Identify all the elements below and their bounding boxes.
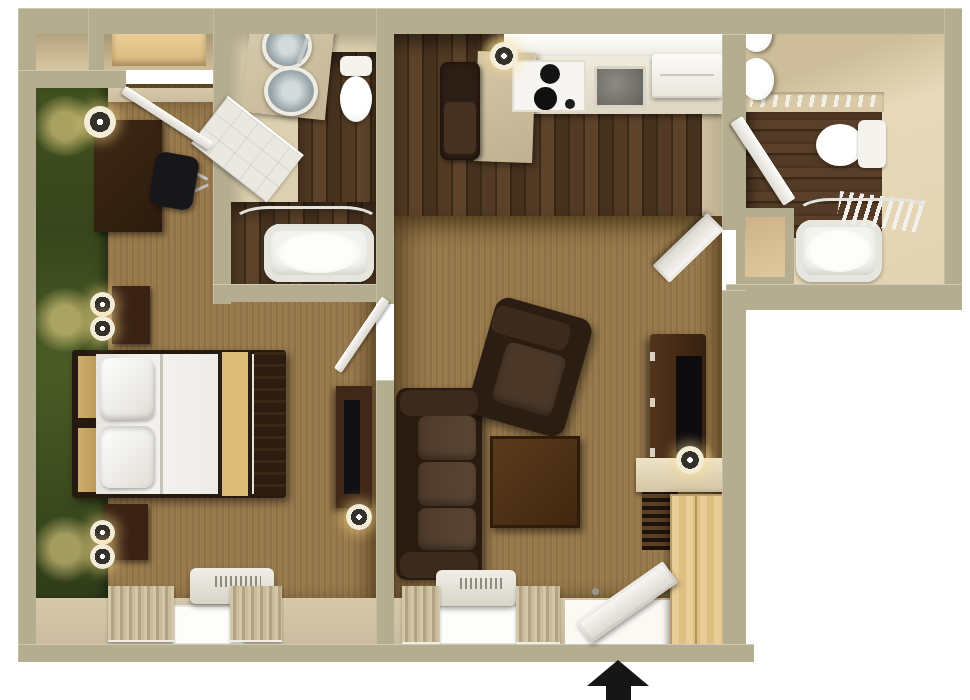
master-toilet — [340, 76, 372, 122]
bedroom-tv — [344, 400, 360, 494]
entry-arrow-head-icon — [587, 660, 649, 686]
wall-bath1-right — [376, 8, 394, 304]
desk-chair — [148, 151, 201, 212]
entry-arrow-stem-icon — [606, 685, 631, 700]
living-ac-unit — [436, 570, 516, 606]
shelf-slats-icon — [750, 95, 878, 107]
vessel-sink-icon — [264, 66, 318, 116]
refrigerator-seam — [660, 74, 714, 76]
sofa-cushion — [418, 462, 476, 506]
bed-pillows — [100, 358, 154, 420]
wardrobe-seam — [695, 496, 697, 644]
master-shower-rod-icon — [232, 206, 380, 239]
second-shower-rod-icon — [796, 198, 932, 229]
nightstand-lamp-icon — [90, 520, 115, 545]
second-toilet-tank — [858, 120, 886, 168]
bed-foot-blanket — [254, 352, 286, 496]
desk-lamp-icon — [84, 106, 116, 138]
wardrobe-cabinet — [670, 494, 728, 650]
living-curtain — [516, 586, 560, 644]
wall-right-upper — [944, 8, 962, 310]
burner-knob-icon — [565, 99, 575, 109]
kitchen-sink — [594, 66, 646, 108]
living-tv — [676, 356, 702, 452]
console-handle-icon — [650, 352, 655, 361]
living-curtain — [402, 586, 440, 644]
console-handle-icon — [650, 448, 655, 457]
burner-icon — [534, 87, 557, 110]
sofa-cushion — [418, 416, 476, 460]
console-lamp-icon — [676, 446, 704, 474]
wall-bath1-bottom — [213, 284, 394, 302]
bedroom-curtain — [230, 586, 282, 642]
nightstand-lamp-icon — [90, 292, 115, 317]
nightstand-lamp-icon — [90, 316, 115, 341]
wall-bath2-bottom — [726, 284, 962, 310]
bed-pillows — [100, 426, 154, 488]
sofa-cushion — [418, 508, 476, 550]
second-bathtub — [796, 220, 882, 282]
master-toilet-tank — [340, 56, 372, 76]
doorknob-icon — [592, 588, 599, 595]
coffee-table — [490, 436, 580, 528]
nightstand-north — [112, 286, 150, 344]
wall-closets-bottom — [18, 70, 126, 88]
burner-icon — [540, 64, 560, 84]
sheet-fold-line — [160, 354, 163, 494]
wall-top — [18, 8, 962, 34]
headboard-panel — [78, 428, 98, 492]
bedroom-curtain — [108, 586, 174, 642]
wall-living-right — [722, 290, 746, 644]
sofa-arm — [400, 390, 478, 416]
wall-left — [18, 8, 36, 662]
second-toilet — [816, 124, 864, 166]
console-handle-icon — [650, 398, 655, 407]
refrigerator — [652, 54, 722, 98]
floor-plan — [0, 0, 970, 700]
bed-runner — [218, 352, 252, 496]
dresser-lamp-icon — [346, 504, 372, 530]
wall-bedroom-living-divider — [376, 380, 394, 644]
nightstand-lamp-icon — [90, 544, 115, 569]
pendant-light-icon — [490, 42, 518, 70]
dining-chair-seat — [444, 102, 476, 154]
headboard-panel — [78, 356, 98, 418]
